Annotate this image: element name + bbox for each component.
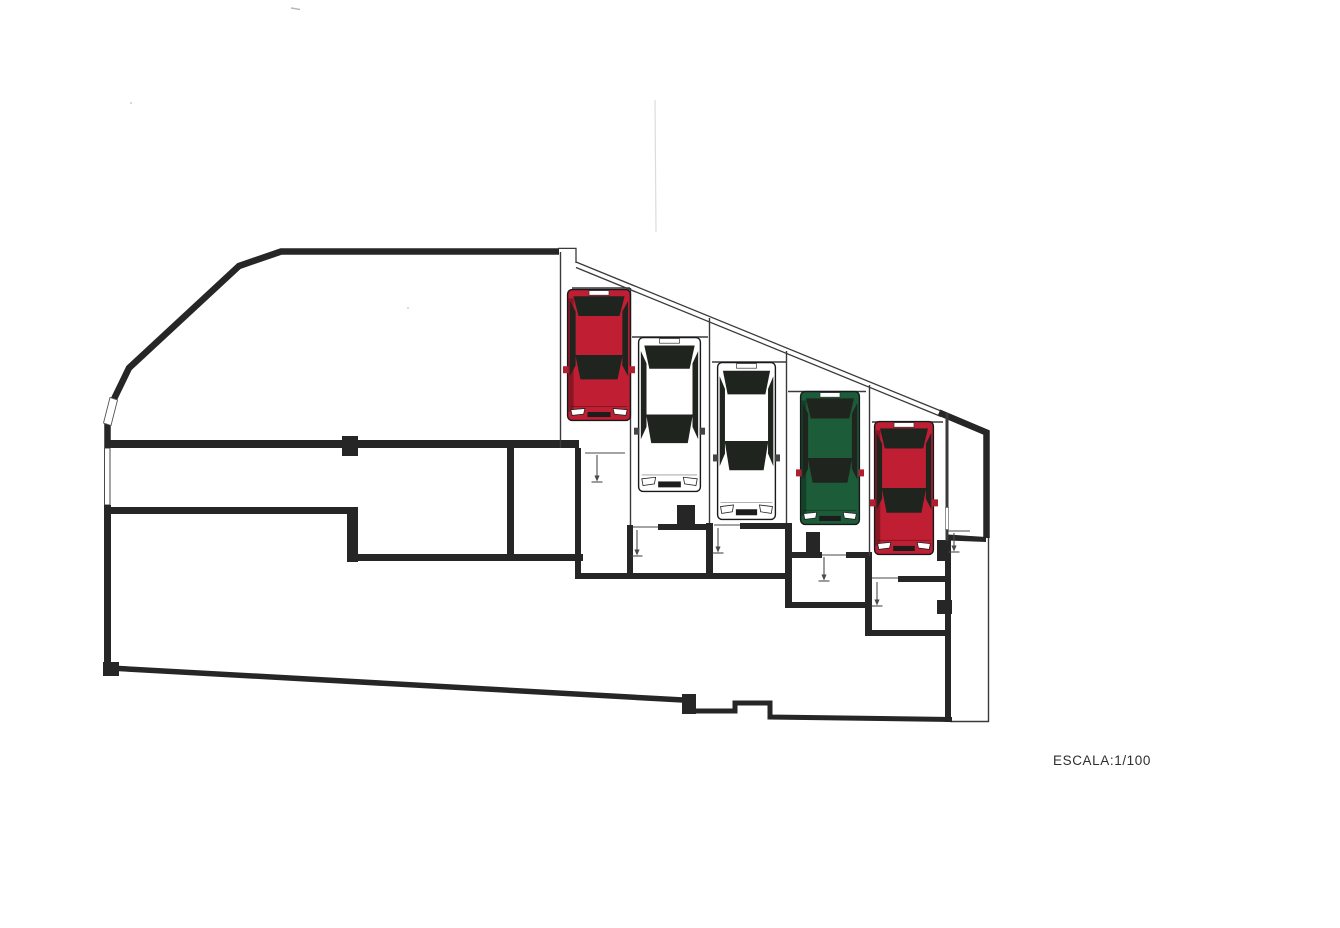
car-headlight-left [878, 542, 891, 549]
car-front-grille [658, 481, 681, 487]
car-rear-window [880, 428, 928, 448]
perimeter-topleft-wall [108, 252, 560, 449]
car-side-window-left [641, 351, 647, 439]
car-side-window-left [877, 433, 882, 509]
car-mirror-left [563, 366, 569, 373]
car-front-grille [587, 412, 610, 417]
car-mirror-right [700, 428, 706, 435]
storage-divider-4 [865, 556, 872, 636]
wall-v3 [575, 448, 581, 579]
speck [407, 307, 409, 309]
window-gap [104, 398, 118, 426]
car-rear-plate [737, 364, 757, 369]
cars-layer [563, 290, 938, 555]
perimeter-bottom-wall-right [692, 703, 952, 720]
car-front-grille [819, 516, 841, 521]
car-white-1 [634, 338, 705, 492]
perimeter-right-thin [950, 538, 989, 722]
door-marker-5 [872, 578, 899, 606]
car-red-2 [870, 422, 938, 555]
wall-v1 [507, 448, 514, 558]
car-mirror-left [870, 499, 876, 506]
storage-bottom-4 [788, 602, 872, 608]
car-side-window-left [803, 403, 808, 479]
car-headlight-right [843, 512, 856, 519]
marker-arrowhead [874, 600, 879, 606]
scan-artifacts [130, 8, 656, 309]
car-rear-window [573, 296, 624, 316]
left-wall [104, 448, 111, 669]
storage-bottom-5 [865, 630, 951, 636]
marker-arrowhead [951, 546, 956, 552]
car-front-grille [736, 509, 757, 515]
storage-divider-2 [706, 523, 713, 579]
pillar-block-2 [677, 505, 695, 527]
left-wall-thick [104, 505, 111, 669]
car-side-window-right [622, 301, 628, 376]
car-headlight-left [642, 477, 656, 485]
car-rear-window [806, 398, 854, 418]
car-headlight-right [759, 505, 772, 513]
plan-sheet: ESCALA:1/100 [0, 0, 1340, 928]
fold-line [655, 100, 656, 232]
perimeter-bottom-wall-left [110, 668, 683, 700]
storage-divider-3 [785, 523, 792, 608]
car-mirror-right [775, 454, 781, 461]
car-mirror-right [630, 366, 636, 373]
car-side-window-left [570, 301, 576, 376]
storage-top-5 [898, 576, 947, 582]
door-marker-3 [713, 525, 741, 553]
car-windshield [725, 441, 769, 470]
marker-arrowhead [821, 575, 826, 581]
car-red-1 [563, 290, 635, 421]
car-white-2 [713, 363, 780, 520]
car-mirror-left [713, 454, 719, 461]
storage-band-bottom-1 [575, 573, 790, 579]
car-headlight-left [571, 408, 585, 415]
wall-v2 [347, 507, 358, 562]
door-gap-corridor [945, 508, 948, 530]
speck [291, 8, 300, 10]
car-rear-plate [820, 393, 840, 398]
car-side-window-right [768, 376, 773, 466]
car-headlight-left [721, 505, 734, 513]
wall-a-pillar [342, 436, 358, 456]
scale-label: ESCALA:1/100 [1053, 753, 1151, 768]
car-side-window-right [852, 403, 857, 479]
car-front-grille [893, 546, 915, 551]
wall-block [682, 694, 696, 714]
corridor-left-wall [945, 540, 951, 722]
car-windshield [808, 458, 852, 483]
door-marker-4 [819, 555, 847, 581]
marker-arrowhead [715, 547, 720, 553]
car-headlight-right [917, 542, 930, 549]
car-headlight-right [683, 477, 697, 485]
car-mirror-left [634, 428, 640, 435]
car-rear-window [644, 346, 694, 369]
marker-arrowhead [594, 476, 599, 482]
door-marker-2 [632, 527, 659, 556]
car-windshield [575, 355, 622, 379]
car-headlight-right [613, 408, 627, 415]
car-windshield [646, 415, 693, 444]
wall-c [352, 554, 583, 561]
car-mirror-right [933, 499, 939, 506]
car-mirror-right [859, 469, 865, 476]
car-side-window-right [692, 351, 698, 439]
storage-divider-1 [627, 525, 633, 579]
door-marker-1 [585, 453, 625, 482]
car-rear-window [723, 371, 770, 395]
storage-top-3 [740, 523, 790, 529]
car-rear-plate [894, 423, 914, 428]
car-rear-plate [589, 291, 609, 296]
car-headlight-left [804, 512, 817, 519]
speck [130, 102, 132, 104]
door-marker-6 [948, 531, 970, 552]
car-side-window-left [720, 376, 725, 466]
wall-b [105, 507, 355, 514]
floor-plan-drawing: ESCALA:1/100 [0, 0, 1340, 928]
marker-arrowhead [634, 550, 639, 556]
pillar-block-4 [806, 532, 820, 557]
car-green-1 [796, 392, 864, 525]
left-wall-window [105, 448, 111, 505]
car-side-window-right [926, 433, 931, 509]
car-mirror-left [796, 469, 802, 476]
outer-wall-blocks [103, 662, 696, 714]
car-rear-plate [660, 339, 680, 344]
car-windshield [882, 488, 926, 513]
